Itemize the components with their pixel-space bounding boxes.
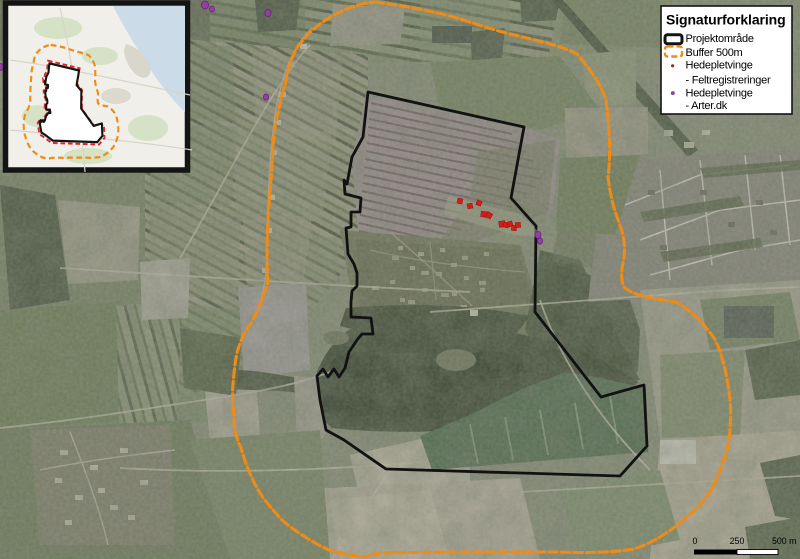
svg-text:250: 250 bbox=[730, 536, 745, 546]
svg-text:0: 0 bbox=[693, 536, 698, 546]
svg-text:Signaturforklaring: Signaturforklaring bbox=[666, 12, 786, 28]
svg-text:- Arter.dk: - Arter.dk bbox=[686, 100, 728, 112]
svg-text:Hedepletvinge: Hedepletvinge bbox=[686, 87, 753, 99]
svg-text:- Feltregistreringer: - Feltregistreringer bbox=[686, 75, 771, 87]
svg-text:Hedepletvinge: Hedepletvinge bbox=[686, 60, 753, 72]
svg-text:500 m: 500 m bbox=[772, 536, 796, 546]
svg-text:Buffer 500m: Buffer 500m bbox=[686, 47, 743, 59]
svg-text:Projektområde: Projektområde bbox=[686, 33, 754, 45]
